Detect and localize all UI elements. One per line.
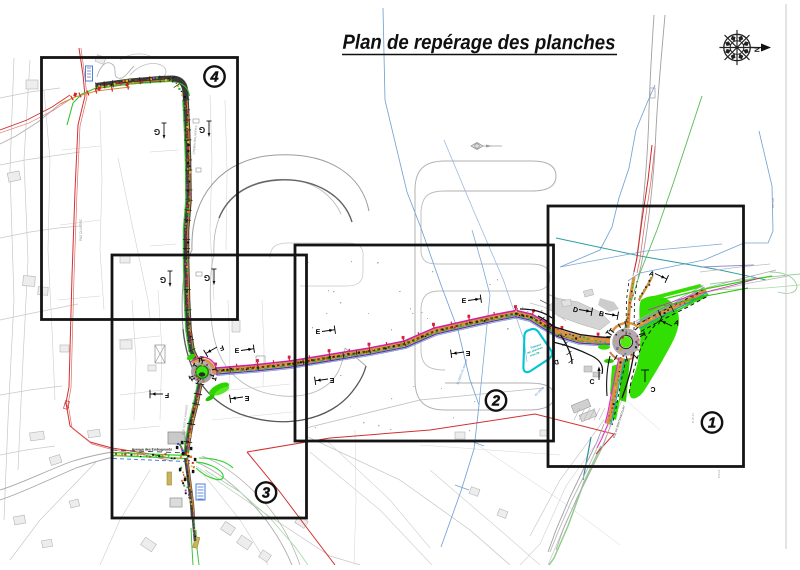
svg-text:4: 4 [209,69,218,85]
svg-text:G: G [204,273,210,282]
svg-text:F: F [164,391,169,398]
svg-text:2: 2 [491,393,500,409]
svg-text:3: 3 [262,485,270,501]
svg-text:1: 1 [708,415,716,431]
svg-text:PAS DU MERC: PAS DU MERC [79,218,83,241]
svg-text:G: G [154,127,160,136]
svg-text:E: E [462,298,467,305]
svg-text:E: E [329,376,334,383]
svg-text:N: N [753,47,760,52]
svg-text:E: E [316,329,321,336]
svg-text:G: G [199,125,205,134]
svg-text:C: C [589,379,594,386]
svg-text:G: G [160,275,166,284]
svg-text:E: E [235,348,240,355]
svg-text:RD 938: RD 938 [771,198,775,209]
svg-text:B 25.41: B 25.41 [691,413,695,423]
svg-text:Plan de repérage des planches: Plan de repérage des planches [342,31,615,54]
svg-text:E: E [244,394,249,401]
svg-text:256.63: 256.63 [717,469,721,478]
svg-text:C: C [650,385,655,392]
svg-text:Avenue des Embagnards: Avenue des Embagnards [132,447,173,451]
svg-text:E: E [465,349,470,356]
